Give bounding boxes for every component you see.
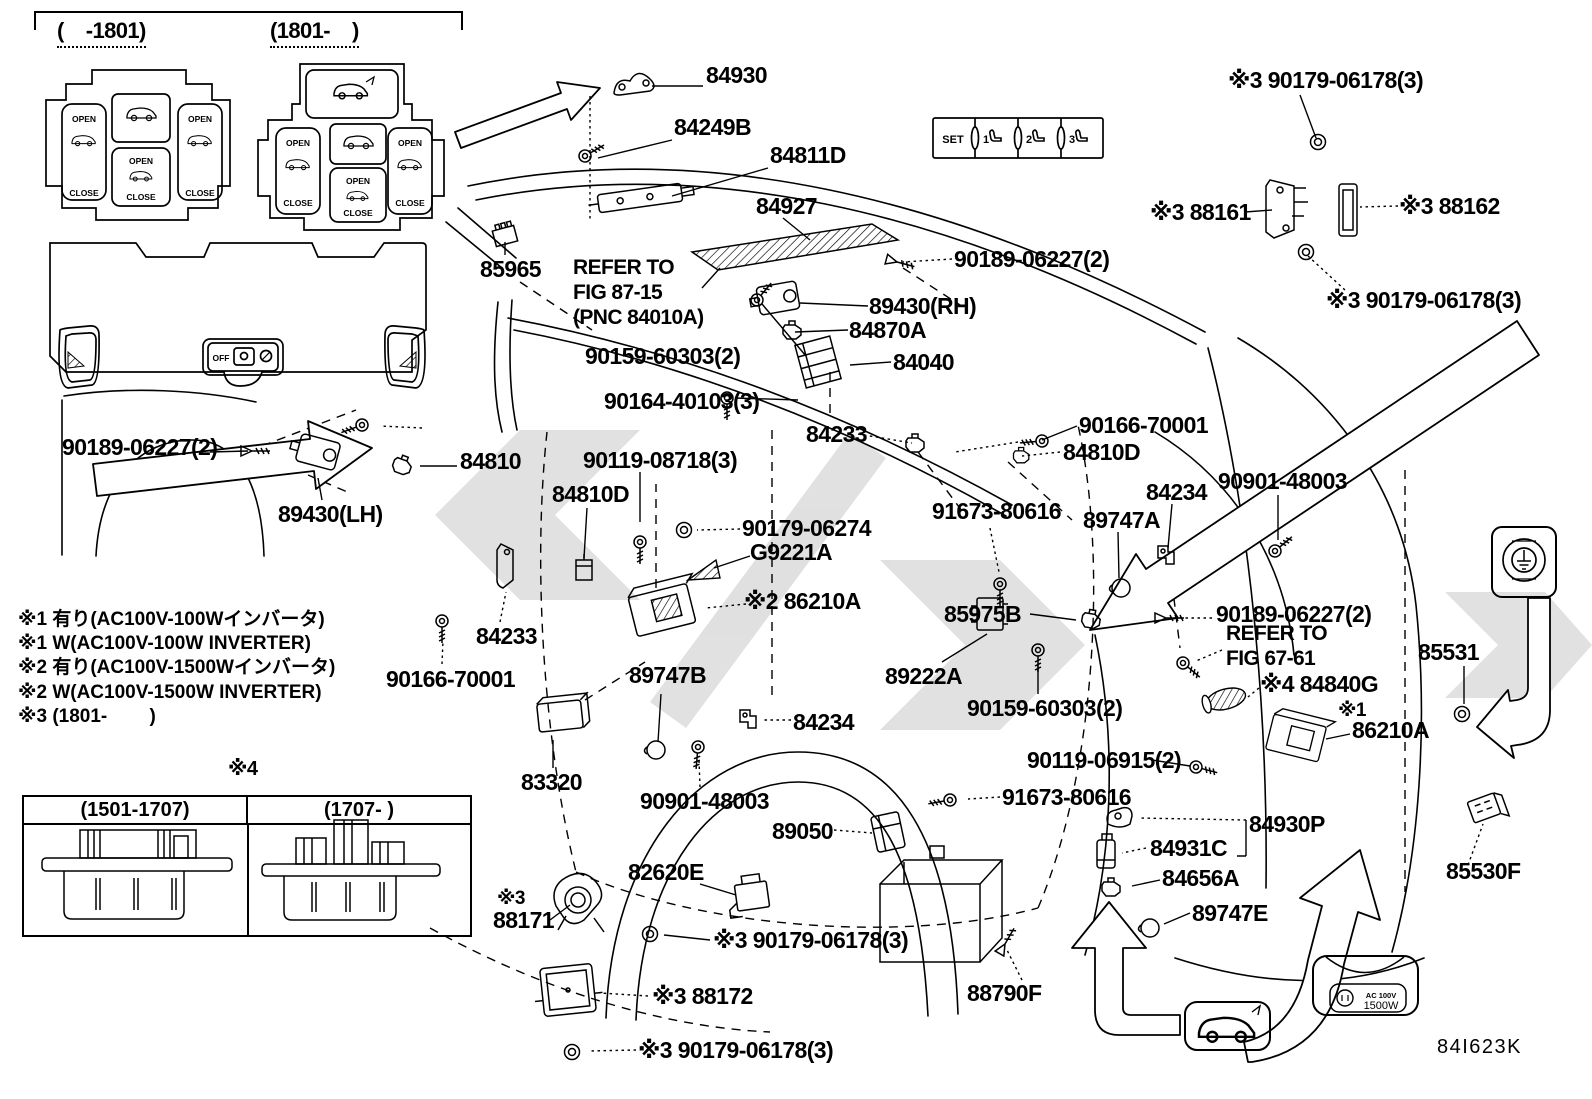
part-label: 84870A [849,319,926,342]
part-label: 90189-06227(2) [62,436,217,459]
connector-variant-table: (1501-1707) (1707- ) [22,795,472,937]
part-label: 90119-06915(2) [1027,749,1181,772]
part-label: 91673-80616 [932,500,1061,523]
part-label: (PNC 84010A) [573,307,704,328]
part-label: ※3 88172 [652,985,753,1008]
part-label: 86210A [1352,719,1429,742]
ac-watt-label: 1500W [1364,1000,1399,1012]
table-column-divider [247,823,249,935]
part-label: 84930P [1249,813,1325,836]
open-label: OPEN [398,138,422,148]
close-label: CLOSE [343,208,373,218]
table-col1-header: (1501-1707) [24,797,248,823]
part-label: ※2 86210A [744,590,861,613]
part-label: 89430(RH) [869,295,976,318]
part-label: ※3 90179-06178(3) [1228,69,1423,92]
open-label: OPEN [188,114,212,124]
part-label: FIG 67-61 [1226,648,1315,669]
part-label: (1801- ) [270,20,359,48]
set-label: SET [942,134,964,146]
part-label: ※4 84840G [1260,673,1378,696]
part-label: 90901-48003 [1218,470,1347,493]
part-label: 90901-48003 [640,790,769,813]
close-label: CLOSE [185,188,215,198]
footnote: ※1 有り(AC100V-100Wインバータ) [18,610,325,629]
part-label: FIG 87-15 [573,282,662,303]
part-label: 85975B [944,603,1021,626]
part-label: 84927 [756,195,817,218]
part-label: 88790F [967,982,1041,1005]
part-label: 84930 [706,64,767,87]
footnote: ※2 W(AC100V-1500W INVERTER) [18,683,322,702]
part-label: 84656A [1162,867,1239,890]
part-label: 90189-06227(2) [954,248,1109,271]
memory-3-label: 3 [1069,134,1075,146]
part-label: REFER TO [573,257,674,278]
close-label: CLOSE [395,198,425,208]
seat-memory-panel: SET 1 2 3 [933,118,1103,158]
close-label: CLOSE [126,192,156,202]
memory-1-label: 1 [983,134,989,146]
part-label: 89747B [629,664,706,687]
part-label: 89747E [1192,902,1268,925]
part-label: 84931C [1150,837,1227,860]
part-label: ※4 [228,759,257,779]
part-label: ※3 88161 [1150,201,1251,224]
part-label: 90119-08718(3) [583,449,737,472]
part-label: 84811D [770,144,846,167]
part-label: 90179-06274 [742,517,871,540]
part-label: 84233 [476,625,537,648]
open-label: OPEN [129,156,153,166]
ac-voltage-label: AC 100V [1366,991,1396,1000]
part-label: 84234 [793,711,854,734]
parts-diagram-page: OPEN CLOSE OPEN CLOSE OPEN CLOSE OPEN CL… [0,0,1592,1099]
part-label: ※3 88162 [1399,195,1500,218]
trim-panel: OFF [50,243,426,388]
ground-icon [1492,527,1556,597]
footnote: ※3 (1801- ) [18,707,156,726]
part-label: 84I623K [1437,1037,1522,1057]
off-label: OFF [213,353,230,363]
open-label: OPEN [286,138,310,148]
part-label: 88171 [493,909,554,932]
part-label: ※3 90179-06178(3) [638,1039,833,1062]
part-label: 89050 [772,820,833,843]
memory-2-label: 2 [1026,134,1032,146]
part-label: 85531 [1418,641,1479,664]
part-label: ※3 90179-06178(3) [713,929,908,952]
table-col2-header: (1707- ) [248,797,470,823]
part-label: 84040 [893,351,954,374]
switch-panel-pre1801: OPEN CLOSE OPEN CLOSE OPEN CLOSE [46,70,230,220]
part-label: G9221A [750,541,832,564]
part-label: 85965 [480,258,541,281]
part-label: 90166-70001 [1079,414,1208,437]
part-label: 84233 [806,423,867,446]
part-label: 89430(LH) [278,503,383,526]
part-label: 84249B [674,116,751,139]
part-label: 84810D [1063,441,1140,464]
part-label: 83320 [521,771,582,794]
part-label: ※3 [497,889,525,908]
footnote: ※1 W(AC100V-100W INVERTER) [18,634,311,653]
watermark-logo [435,430,1592,730]
part-label: 82620E [628,861,704,884]
part-label: 90166-70001 [386,668,515,691]
part-label: 89747A [1083,509,1160,532]
part-label: 85530F [1446,860,1520,883]
part-label: 90159-60303(2) [967,697,1122,720]
switch-panel-post1801: OPEN CLOSE OPEN CLOSE OPEN CLOSE [258,64,444,230]
part-label: 89222A [885,665,962,688]
footnote: ※2 有り(AC100V-1500Wインバータ) [18,658,335,677]
open-label: OPEN [346,176,370,186]
close-label: CLOSE [69,188,99,198]
part-label: 84810 [460,450,521,473]
open-label: OPEN [72,114,96,124]
part-label: ( -1801) [57,20,146,48]
close-label: CLOSE [283,198,313,208]
part-label: REFER TO [1226,623,1327,644]
part-label: 91673-80616 [1002,786,1131,809]
part-label: 90159-60303(2) [585,345,740,368]
part-label: 84810D [552,483,629,506]
part-label: 84234 [1146,481,1207,504]
part-label: ※3 90179-06178(3) [1326,289,1521,312]
part-label: 90164-40103(3) [604,390,759,413]
